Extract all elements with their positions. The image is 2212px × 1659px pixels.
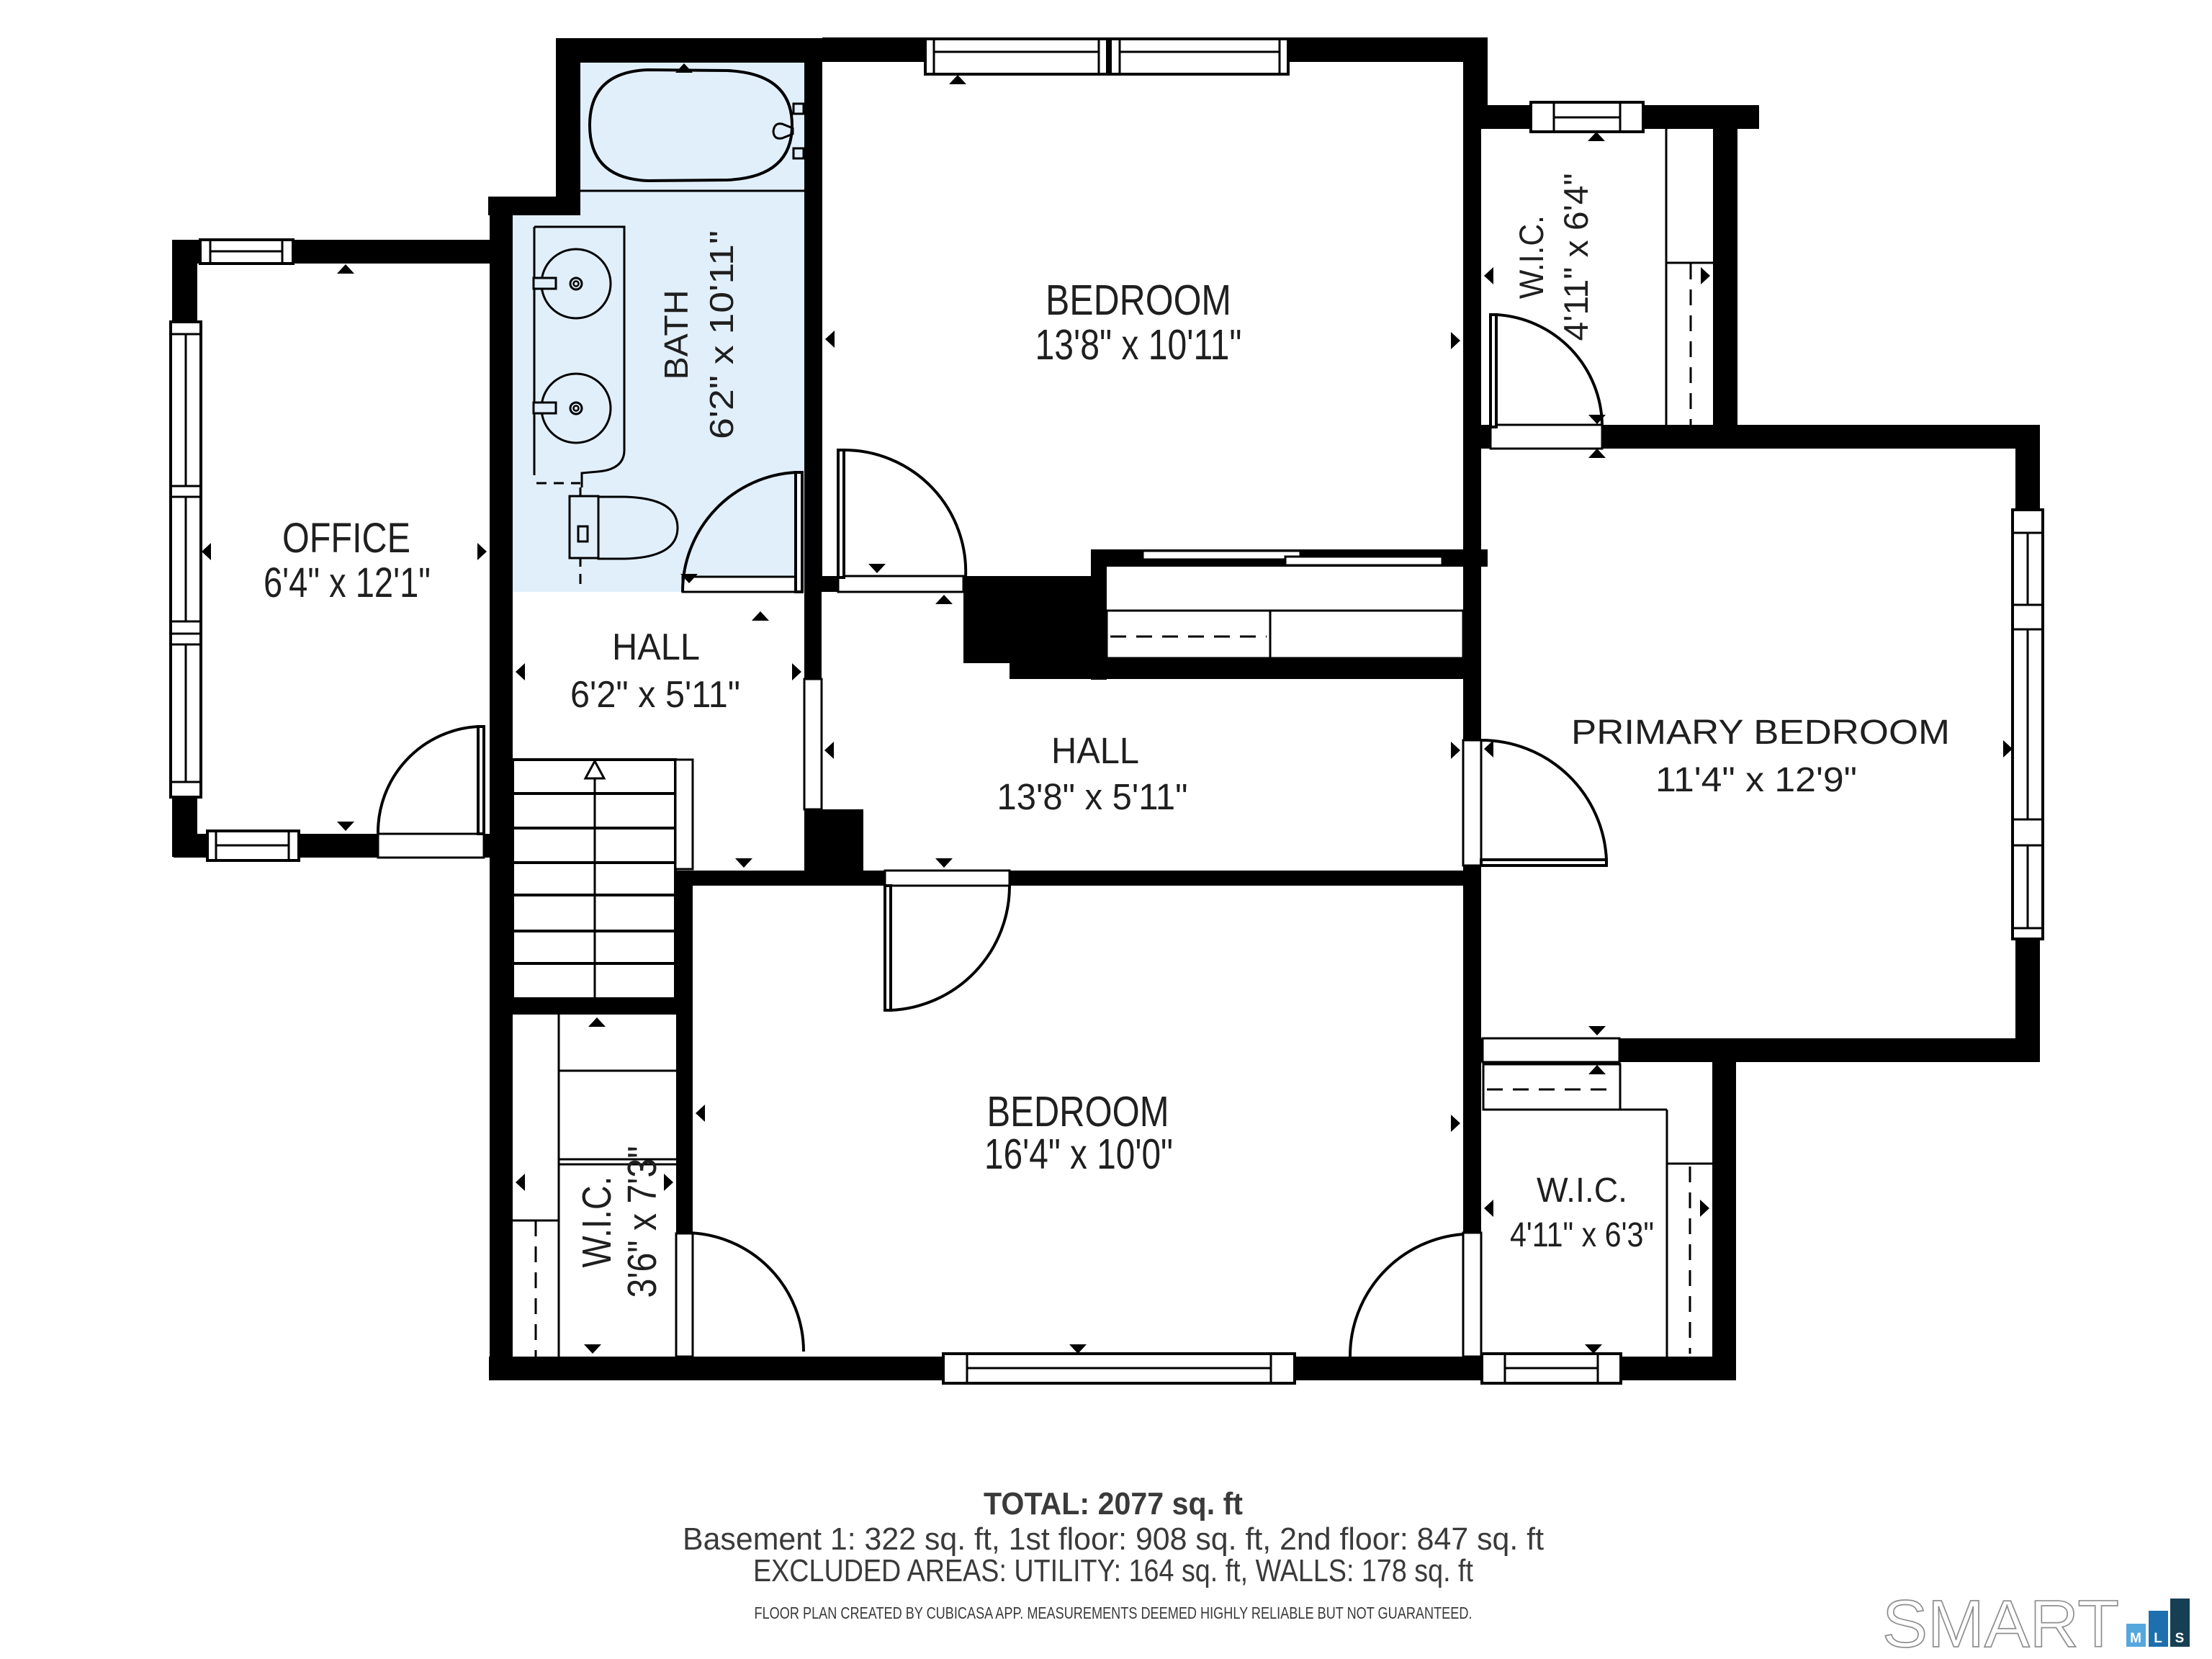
svg-text:HALL: HALL bbox=[1051, 730, 1139, 771]
svg-text:6'4" x 12'1": 6'4" x 12'1" bbox=[264, 559, 431, 606]
svg-text:L: L bbox=[2154, 1631, 2162, 1646]
svg-text:W.I.C.: W.I.C. bbox=[1537, 1172, 1627, 1210]
svg-text:TOTAL: 2077 sq. ft: TOTAL: 2077 sq. ft bbox=[984, 1486, 1243, 1521]
svg-text:4'11" x 6'3": 4'11" x 6'3" bbox=[1510, 1216, 1654, 1254]
svg-text:W.I.C.: W.I.C. bbox=[574, 1177, 620, 1268]
svg-text:11'4" x 12'9": 11'4" x 12'9" bbox=[1655, 761, 1857, 799]
svg-text:Basement 1: 322 sq. ft, 1st fl: Basement 1: 322 sq. ft, 1st floor: 908 s… bbox=[683, 1521, 1544, 1557]
svg-text:M: M bbox=[2130, 1631, 2141, 1646]
svg-text:W.I.C.: W.I.C. bbox=[1512, 215, 1550, 299]
svg-text:FLOOR PLAN CREATED BY CUBICASA: FLOOR PLAN CREATED BY CUBICASA APP. MEAS… bbox=[755, 1604, 1473, 1622]
svg-text:OFFICE: OFFICE bbox=[282, 515, 410, 562]
svg-text:13'8" x 10'11": 13'8" x 10'11" bbox=[1035, 321, 1242, 369]
svg-text:HALL: HALL bbox=[612, 626, 700, 668]
svg-text:BEDROOM: BEDROOM bbox=[1046, 276, 1231, 324]
svg-text:6'2" x 5'11": 6'2" x 5'11" bbox=[570, 674, 740, 716]
svg-text:16'4" x 10'0": 16'4" x 10'0" bbox=[984, 1130, 1173, 1178]
svg-text:SMART: SMART bbox=[1882, 1586, 2119, 1659]
svg-text:BATH: BATH bbox=[657, 290, 695, 380]
svg-text:3'6" x 7'3": 3'6" x 7'3" bbox=[619, 1146, 665, 1298]
svg-text:13'8" x 5'11": 13'8" x 5'11" bbox=[997, 776, 1188, 817]
svg-text:6'2" x 10'11": 6'2" x 10'11" bbox=[703, 230, 740, 439]
svg-text:BEDROOM: BEDROOM bbox=[987, 1088, 1169, 1136]
svg-text:EXCLUDED AREAS: UTILITY: 164 s: EXCLUDED AREAS: UTILITY: 164 sq. ft, WAL… bbox=[753, 1553, 1473, 1588]
svg-text:S: S bbox=[2175, 1631, 2185, 1646]
svg-text:PRIMARY BEDROOM: PRIMARY BEDROOM bbox=[1571, 714, 1950, 752]
svg-text:4'11" x 6'4": 4'11" x 6'4" bbox=[1557, 174, 1595, 341]
